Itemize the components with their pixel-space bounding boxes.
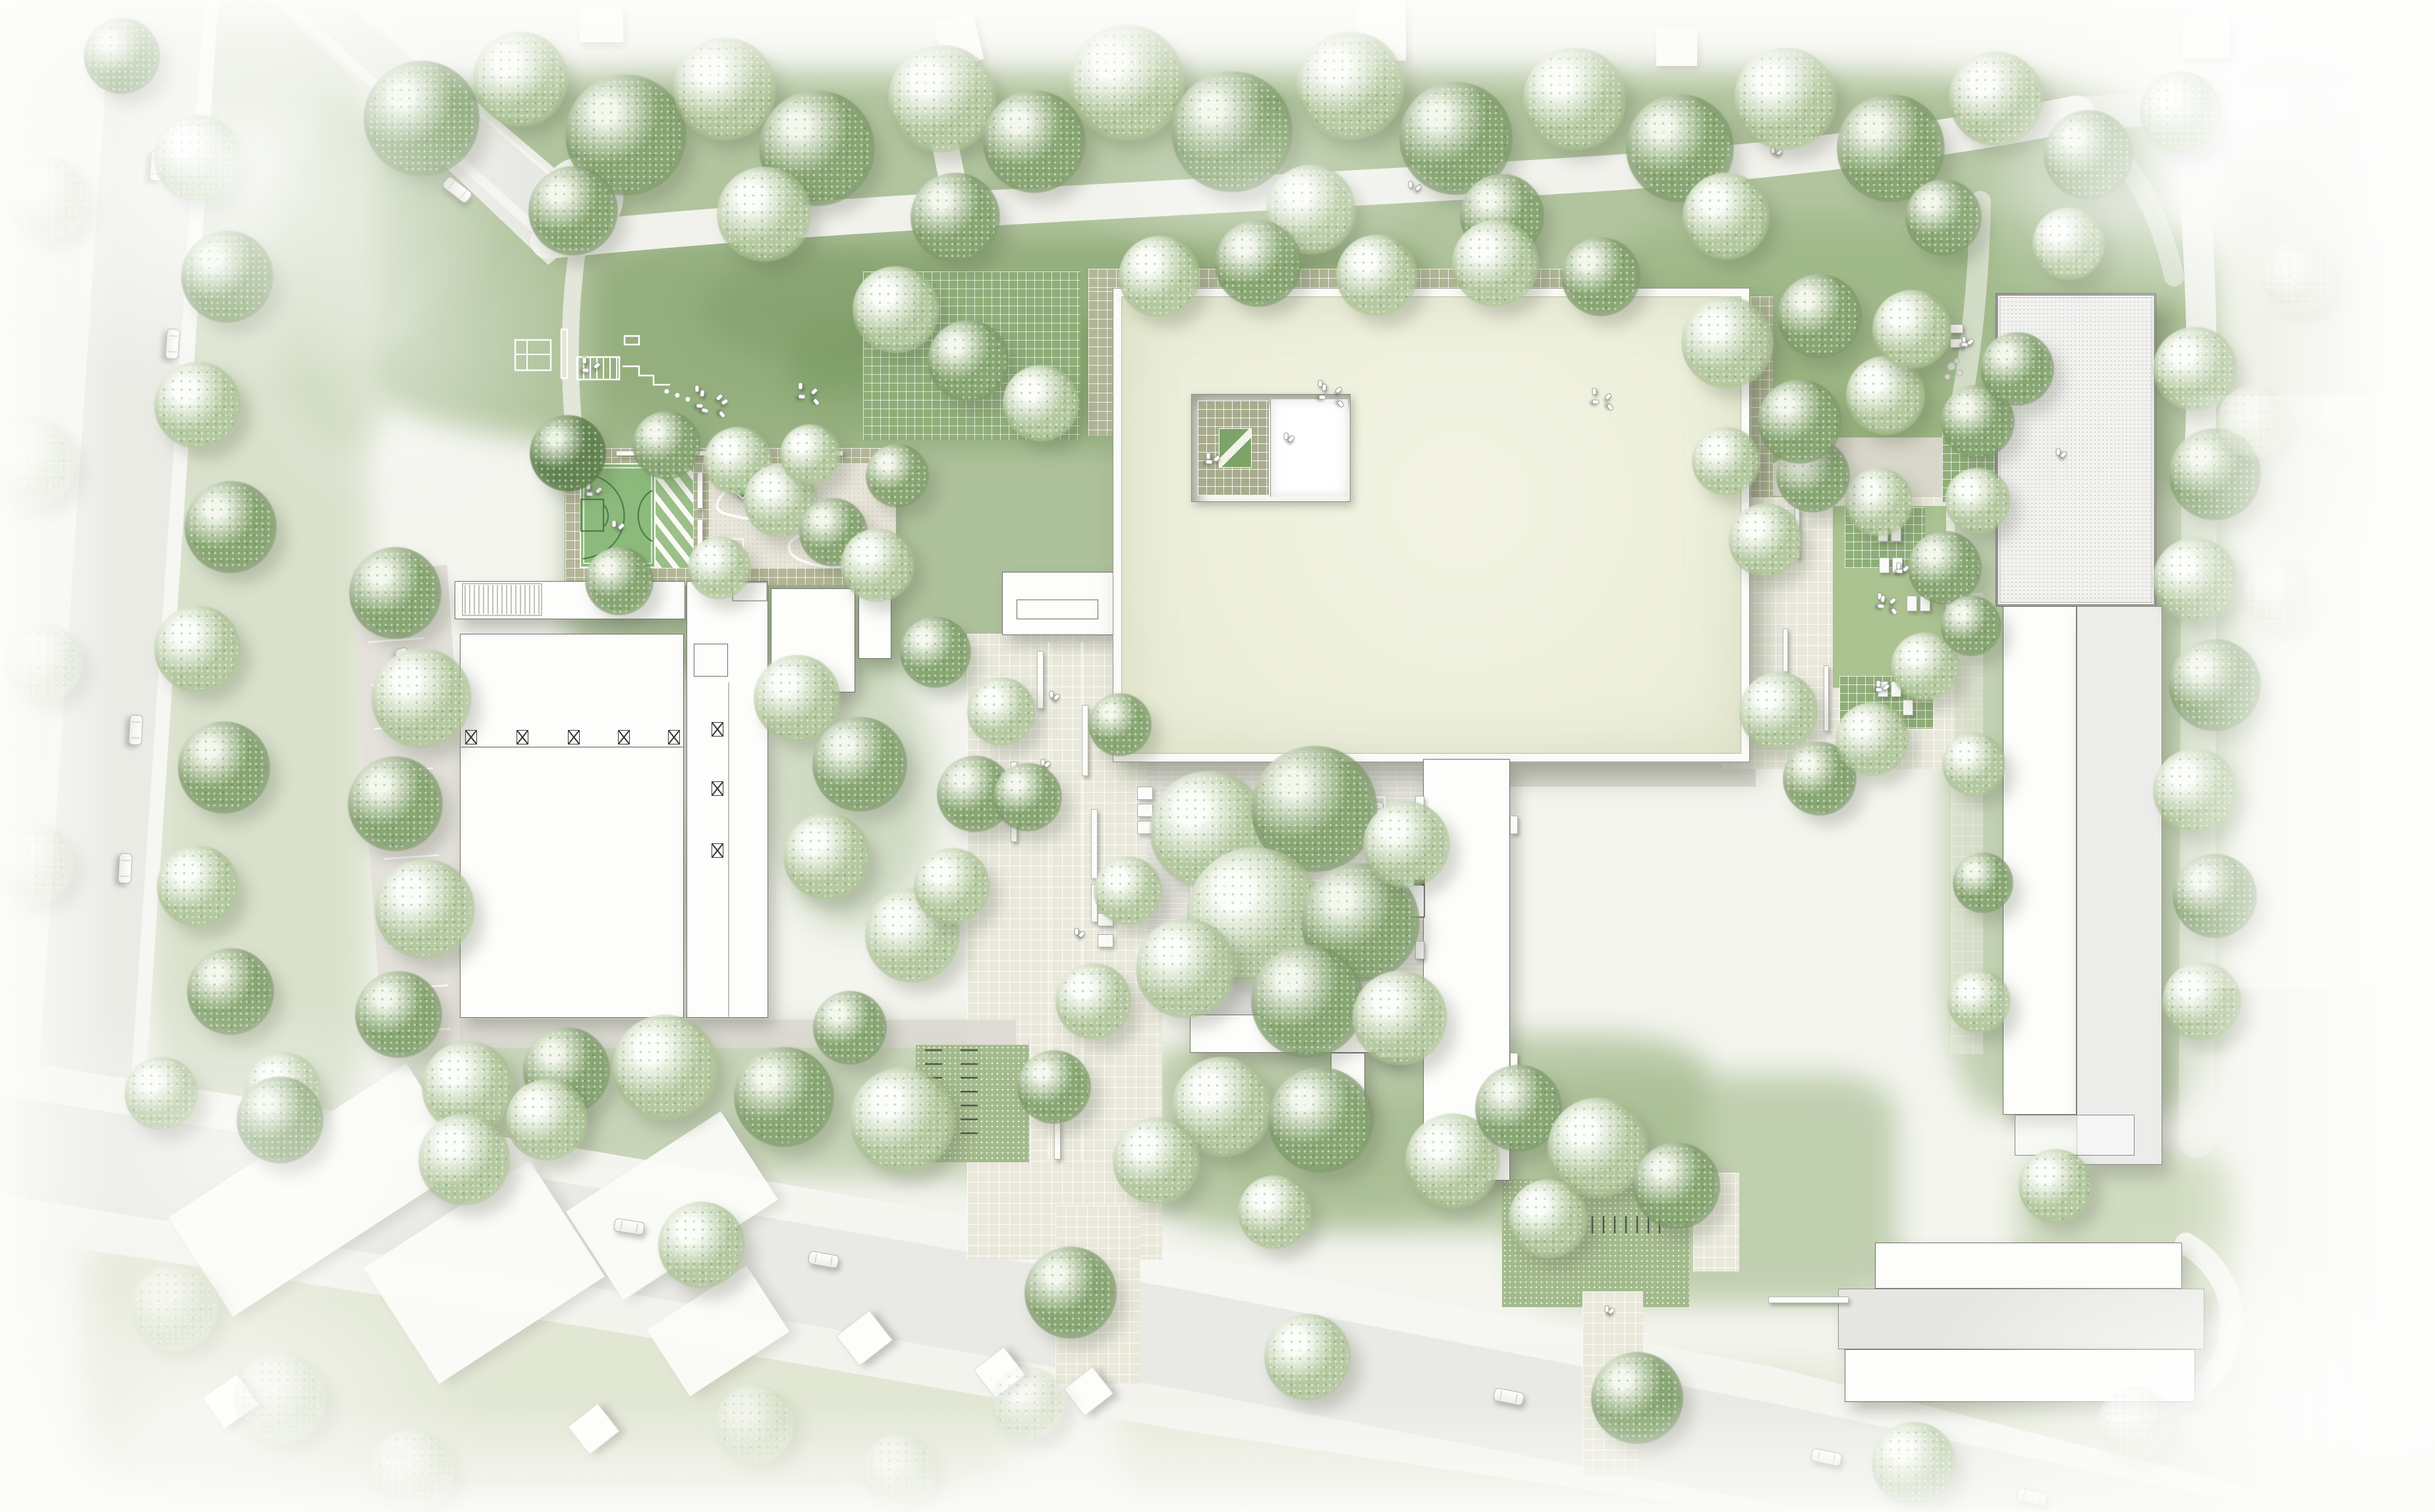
tree — [1460, 174, 1544, 258]
court-three-point-arc — [584, 473, 625, 559]
car — [378, 123, 410, 152]
person — [1055, 1061, 1060, 1068]
person — [718, 410, 726, 418]
lawn-wash — [1120, 1357, 1878, 1512]
context-building-c — [566, 1111, 778, 1301]
tree — [1905, 179, 1982, 256]
court-key — [581, 499, 603, 531]
edge-fade — [1944, 66, 2273, 329]
parking-stall-lines — [1191, 880, 1380, 921]
tree — [734, 1047, 834, 1147]
tower-west-path — [1951, 593, 1983, 1054]
slab-stair-box — [1402, 856, 1424, 917]
person — [696, 403, 703, 408]
tree — [355, 971, 442, 1058]
bollard-3 — [686, 397, 690, 402]
sports-hall-east-wing — [686, 581, 768, 1018]
hall-stair-outline — [462, 584, 542, 615]
6 — [584, 357, 617, 379]
parking-pavement — [1146, 761, 1426, 980]
lawn-wash — [2016, 1153, 2233, 1324]
bench-strip — [693, 463, 709, 568]
person — [810, 387, 819, 396]
tree — [1846, 356, 1925, 435]
roads-and-paths — [0, 0, 2435, 1512]
edge-fade — [1054, 99, 1449, 270]
tree — [530, 415, 606, 491]
lawn-wash — [79, 1219, 1015, 1502]
picnic-table — [1137, 804, 1153, 817]
playground-access-path — [571, 217, 582, 422]
tree — [2173, 854, 2257, 938]
road-nw-sidewalk-a — [262, 0, 553, 245]
car — [414, 988, 435, 1021]
bench — [1783, 629, 1788, 672]
parking-stall-lines — [366, 595, 451, 1032]
edge-fade — [231, 132, 560, 527]
lawn-wash — [567, 395, 1160, 672]
lawn-wash — [152, 0, 369, 1140]
person — [1889, 597, 1897, 605]
person — [1053, 692, 1061, 701]
person — [1775, 148, 1783, 157]
tree — [865, 888, 960, 983]
tree — [2019, 1149, 2092, 1223]
person — [768, 514, 775, 519]
person — [1075, 928, 1079, 936]
tree — [853, 266, 939, 353]
picnic-table — [1891, 681, 1901, 697]
tree — [1683, 173, 1770, 260]
sports-hall-wing-roofbox — [694, 644, 728, 677]
residential-slab — [1423, 759, 1510, 1181]
court-key-arc — [603, 505, 608, 527]
car — [613, 1218, 646, 1236]
person — [582, 357, 587, 364]
school-east-band — [1750, 296, 1773, 764]
bench — [697, 519, 703, 552]
bike-racks — [925, 1050, 978, 1133]
skylight-x-marker — [712, 781, 723, 796]
picnic-table — [1415, 796, 1424, 814]
playground-band-bottom — [565, 568, 896, 585]
tree — [1953, 853, 2013, 913]
tree — [2153, 538, 2237, 622]
tree — [1835, 702, 1909, 776]
garden-shed — [568, 1403, 620, 1455]
car — [1370, 802, 1384, 832]
car — [1299, 802, 1312, 832]
tree — [2169, 639, 2261, 731]
tree-canopy-mass — [764, 652, 936, 929]
picnic-table — [1879, 557, 1889, 573]
tree — [862, 1434, 936, 1507]
tree — [157, 845, 238, 927]
tree — [1908, 531, 1982, 605]
skylight-x-marker — [668, 730, 680, 744]
se-path — [1693, 1173, 1739, 1272]
tree — [528, 166, 618, 256]
tree — [841, 528, 914, 602]
tree — [585, 547, 654, 615]
picnic-table — [1274, 972, 1294, 980]
lawn-wash — [1726, 369, 1963, 507]
person — [1608, 1307, 1616, 1316]
car — [128, 715, 143, 746]
bench — [1768, 1297, 1849, 1303]
south-east-building-top — [1875, 1243, 2182, 1289]
tree — [2162, 962, 2241, 1041]
tree — [991, 1366, 1065, 1440]
lawn-wash — [1911, 1344, 2253, 1512]
bollard-1 — [665, 389, 669, 394]
context-building-n3 — [1356, 0, 1406, 61]
tree-canopy-mass — [1581, 296, 1845, 389]
tree — [1633, 1142, 1720, 1229]
road-south-sidewalk-north — [0, 1059, 2345, 1512]
tree — [1399, 82, 1513, 195]
person — [1876, 681, 1881, 688]
road-nw-sidewalk-b — [329, 0, 602, 215]
tree — [688, 536, 751, 600]
tree — [422, 1041, 514, 1133]
person — [1409, 181, 1413, 188]
bench — [1011, 762, 1017, 842]
car — [808, 1250, 840, 1269]
tree — [1171, 71, 1293, 192]
stone-2 — [1956, 370, 1963, 376]
tree — [0, 415, 76, 507]
car — [1139, 1122, 1154, 1153]
tree — [2169, 428, 2261, 520]
tree — [1297, 32, 1405, 140]
east-lawn-grid-top — [1845, 507, 1925, 568]
east-road-crossing — [1582, 1291, 1643, 1476]
street-west-sidewalk-west — [26, 0, 105, 1160]
tree — [1739, 672, 1818, 751]
tree — [1238, 1175, 1312, 1249]
tree — [813, 991, 887, 1065]
ne-green-grid — [863, 271, 1080, 440]
hall-bike-area — [916, 1045, 1029, 1162]
tree — [759, 90, 875, 206]
stone-4 — [1954, 358, 1959, 364]
tree — [754, 655, 841, 742]
tree — [184, 481, 277, 573]
tree — [717, 167, 812, 262]
tree — [2098, 1386, 2171, 1460]
tree — [780, 424, 841, 485]
tree — [1837, 94, 1945, 202]
east-lawn-grid-bottom — [1839, 676, 1933, 729]
lawn-wash — [1515, 1074, 1897, 1304]
person — [1876, 687, 1883, 692]
tree — [914, 848, 990, 924]
tree — [1003, 365, 1079, 441]
picnic-table — [1098, 934, 1113, 947]
skylight-x-marker — [618, 730, 630, 744]
person — [1212, 455, 1221, 463]
person — [1158, 813, 1167, 822]
tree — [1215, 220, 1302, 307]
tree — [928, 320, 1009, 402]
tree — [1681, 296, 1774, 389]
bench — [797, 451, 843, 456]
tower-gray-roof — [1996, 294, 2156, 606]
person — [1961, 342, 1968, 347]
school-south-walk — [1120, 763, 1756, 787]
skylight-x-marker — [568, 730, 580, 744]
car — [441, 175, 474, 204]
hall-south-walk — [460, 1020, 1016, 1048]
edge-fade — [0, 0, 527, 395]
sand-pit — [713, 539, 743, 564]
tree — [1776, 439, 1850, 513]
tree — [154, 115, 241, 202]
tower-slab-east — [2077, 606, 2162, 1165]
edge-fade — [0, 1219, 494, 1512]
pavilion-c-skylight — [1017, 600, 1098, 619]
bench — [1795, 507, 1800, 559]
edge-fade — [1911, 1219, 2435, 1512]
ne-gravel-path — [1727, 437, 1951, 501]
tree — [1626, 94, 1734, 202]
person — [1206, 459, 1213, 464]
person — [1897, 563, 1901, 570]
school-roof — [1113, 289, 1749, 762]
tree — [506, 1079, 588, 1161]
playground-band-left — [565, 448, 582, 585]
context-building-n1 — [580, 5, 623, 42]
picnic-table — [1137, 821, 1153, 834]
playground-band-top — [565, 448, 896, 464]
picnic-table — [1098, 913, 1113, 926]
tree — [1758, 379, 1842, 464]
edge-fade — [1976, 0, 2435, 329]
tree — [3, 623, 82, 702]
court-far-arc — [638, 491, 652, 541]
tree — [704, 427, 772, 495]
fitness-frame-a — [515, 340, 551, 370]
person — [617, 522, 625, 531]
tree — [1055, 963, 1132, 1040]
bench — [1054, 1120, 1061, 1160]
car — [397, 692, 418, 725]
tree — [937, 756, 1013, 832]
tree — [1452, 220, 1539, 307]
bench — [1091, 809, 1098, 879]
person — [1604, 393, 1613, 401]
school-north-band — [1088, 269, 1602, 291]
fitness-ladder — [577, 357, 619, 379]
car — [1248, 880, 1261, 910]
person — [1156, 812, 1160, 819]
stone-1 — [1947, 362, 1955, 370]
tree — [1945, 468, 2011, 534]
picnic-table — [1137, 787, 1153, 800]
tree — [1150, 771, 1268, 889]
tree — [888, 45, 996, 153]
tree — [1548, 1098, 1648, 1198]
bike-racks — [1536, 1216, 1660, 1233]
tree — [1024, 1246, 1117, 1339]
person — [2059, 450, 2068, 459]
person — [1287, 434, 1296, 443]
person — [2056, 449, 2061, 456]
picnic-table — [1907, 596, 1917, 611]
street-west-surface — [20, 0, 219, 1160]
car — [2015, 1487, 2048, 1507]
context-building-a — [169, 1063, 471, 1316]
person — [769, 505, 773, 512]
slab-stair-landing — [1414, 856, 1424, 885]
picnic-table — [1415, 941, 1424, 959]
person — [1901, 565, 1910, 573]
person — [812, 398, 820, 406]
site-plan — [0, 0, 2435, 1512]
tree — [2243, 557, 2316, 629]
furniture-layer — [0, 0, 2435, 1512]
picnic-table — [1878, 526, 1888, 542]
east-plaza — [1723, 497, 1955, 769]
south-east-building-low — [1845, 1349, 2195, 1402]
14 — [1403, 860, 1404, 912]
bench — [1082, 705, 1088, 776]
tree — [234, 1352, 326, 1444]
tree — [1113, 1117, 1200, 1204]
tree — [565, 74, 686, 196]
tree — [715, 1385, 794, 1464]
tree — [154, 362, 241, 449]
context-building-n2 — [933, 13, 984, 69]
tree — [187, 948, 274, 1035]
tree-canopy-mass — [1792, 468, 1963, 718]
tree — [2311, 387, 2380, 456]
person — [1078, 930, 1086, 938]
car — [1278, 880, 1291, 910]
edge-fade — [0, 1403, 2435, 1512]
skylight-x-marker — [712, 843, 723, 858]
tree — [673, 38, 776, 140]
car — [1337, 881, 1351, 911]
person — [593, 361, 602, 370]
tree — [1941, 596, 2001, 656]
tree — [658, 1202, 745, 1289]
car — [393, 602, 414, 634]
playground-underlay — [565, 448, 896, 585]
parking-stall-lines — [1191, 922, 1380, 963]
person — [700, 407, 708, 413]
tree — [237, 1077, 323, 1163]
se-curve-path — [2116, 1244, 2231, 1411]
sports-hall-main — [460, 634, 684, 1018]
car — [394, 646, 415, 679]
tree-layer — [0, 0, 2435, 1512]
tree — [613, 1015, 718, 1120]
lawn-wash — [1944, 283, 2220, 1113]
east-lawn — [1833, 506, 1946, 688]
bench — [1824, 665, 1829, 731]
person — [715, 393, 723, 401]
paving-layer — [0, 0, 2435, 1512]
picnic-table — [1892, 557, 1903, 573]
tree — [4, 155, 88, 240]
fade-layer — [0, 0, 2435, 1512]
tree — [1475, 1065, 1562, 1152]
detail-linework — [0, 0, 2435, 1512]
tree — [1264, 1314, 1351, 1401]
context-building-n4 — [1656, 29, 1697, 66]
tree-canopy-mass — [702, 254, 985, 366]
tree — [910, 173, 1000, 262]
person — [1334, 386, 1343, 395]
garden-shed — [836, 1310, 893, 1366]
skylight-x-marker — [517, 730, 528, 744]
path-junction-plaza — [542, 157, 623, 238]
person — [1414, 183, 1422, 192]
courtyard-frame — [1191, 394, 1351, 502]
lawn-wash — [422, 1028, 1067, 1179]
picnic-table — [1415, 1026, 1424, 1045]
tree — [181, 231, 273, 323]
l-building-white-bar — [1190, 1015, 1395, 1053]
tree — [1136, 918, 1236, 1019]
tree — [1336, 235, 1418, 316]
tree — [1251, 746, 1378, 872]
person — [612, 520, 617, 528]
tree — [1941, 385, 2015, 459]
tree — [418, 1113, 511, 1206]
bench — [1037, 651, 1044, 709]
picnic-table — [1903, 700, 1913, 715]
skylight-x-marker — [465, 730, 477, 744]
ne-grid-patch — [1942, 419, 1998, 502]
play-loop-b — [789, 529, 864, 567]
tree — [349, 547, 441, 639]
road-northwest-surface — [257, 0, 605, 265]
edge-fade — [0, 0, 119, 1512]
fitness-steps — [623, 366, 669, 385]
person — [1336, 400, 1344, 408]
person — [1882, 683, 1890, 691]
lawn-wash — [2227, 66, 2435, 540]
stone-3 — [1945, 374, 1950, 379]
stripes-zone — [656, 463, 693, 568]
road-south-sidewalk-south — [0, 1195, 2135, 1512]
tree — [1187, 847, 1324, 984]
tree — [850, 1067, 955, 1173]
tree — [375, 859, 475, 959]
person — [1895, 569, 1903, 574]
tree — [1353, 970, 1447, 1065]
courtyard-garden-bed — [1219, 428, 1252, 468]
tree — [1947, 970, 2011, 1033]
person — [1322, 383, 1327, 391]
basketball-court — [580, 463, 656, 568]
picnic-table — [1920, 596, 1930, 611]
pavilion-c — [1002, 572, 1114, 635]
sports-hall-roof-strip — [455, 581, 685, 619]
tree — [1777, 274, 1862, 358]
tree — [372, 648, 472, 748]
lawn-layer — [0, 0, 2435, 1512]
person — [1318, 395, 1326, 400]
person — [1966, 338, 1974, 347]
lawn-wash — [1614, 217, 2220, 501]
person — [586, 491, 593, 497]
bench — [616, 451, 721, 456]
context-building-d — [647, 1266, 789, 1397]
